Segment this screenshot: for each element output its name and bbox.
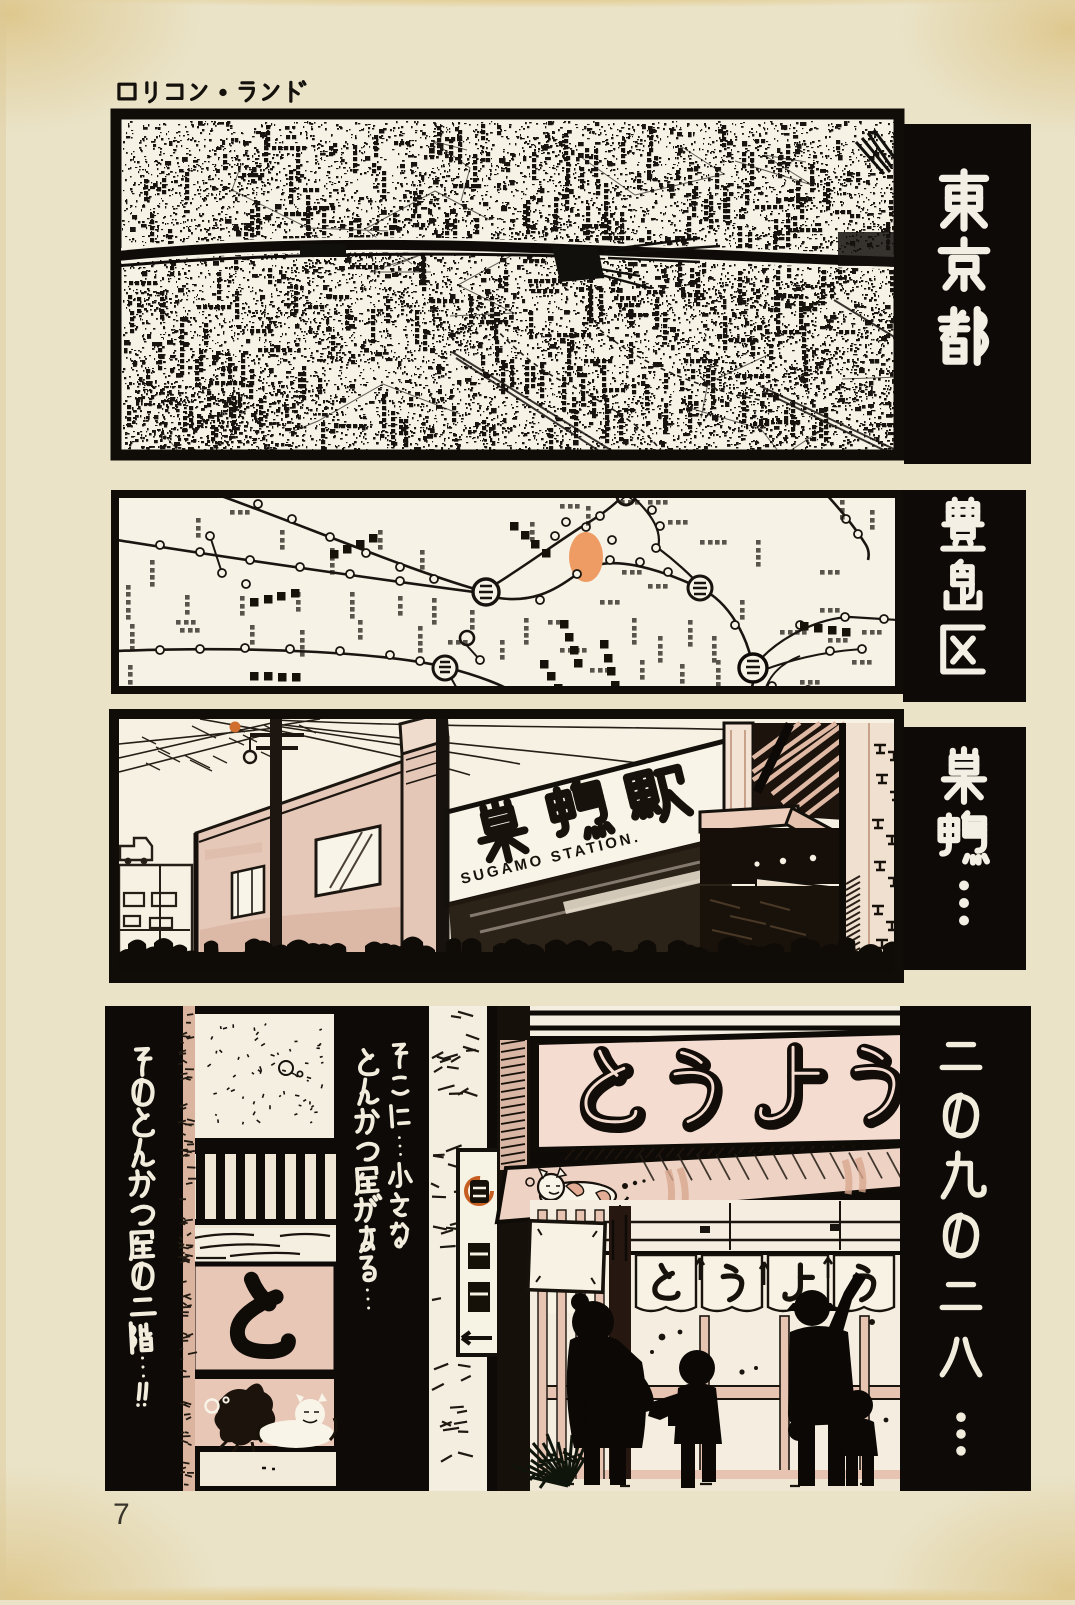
- svg-text:7: 7: [113, 1498, 130, 1531]
